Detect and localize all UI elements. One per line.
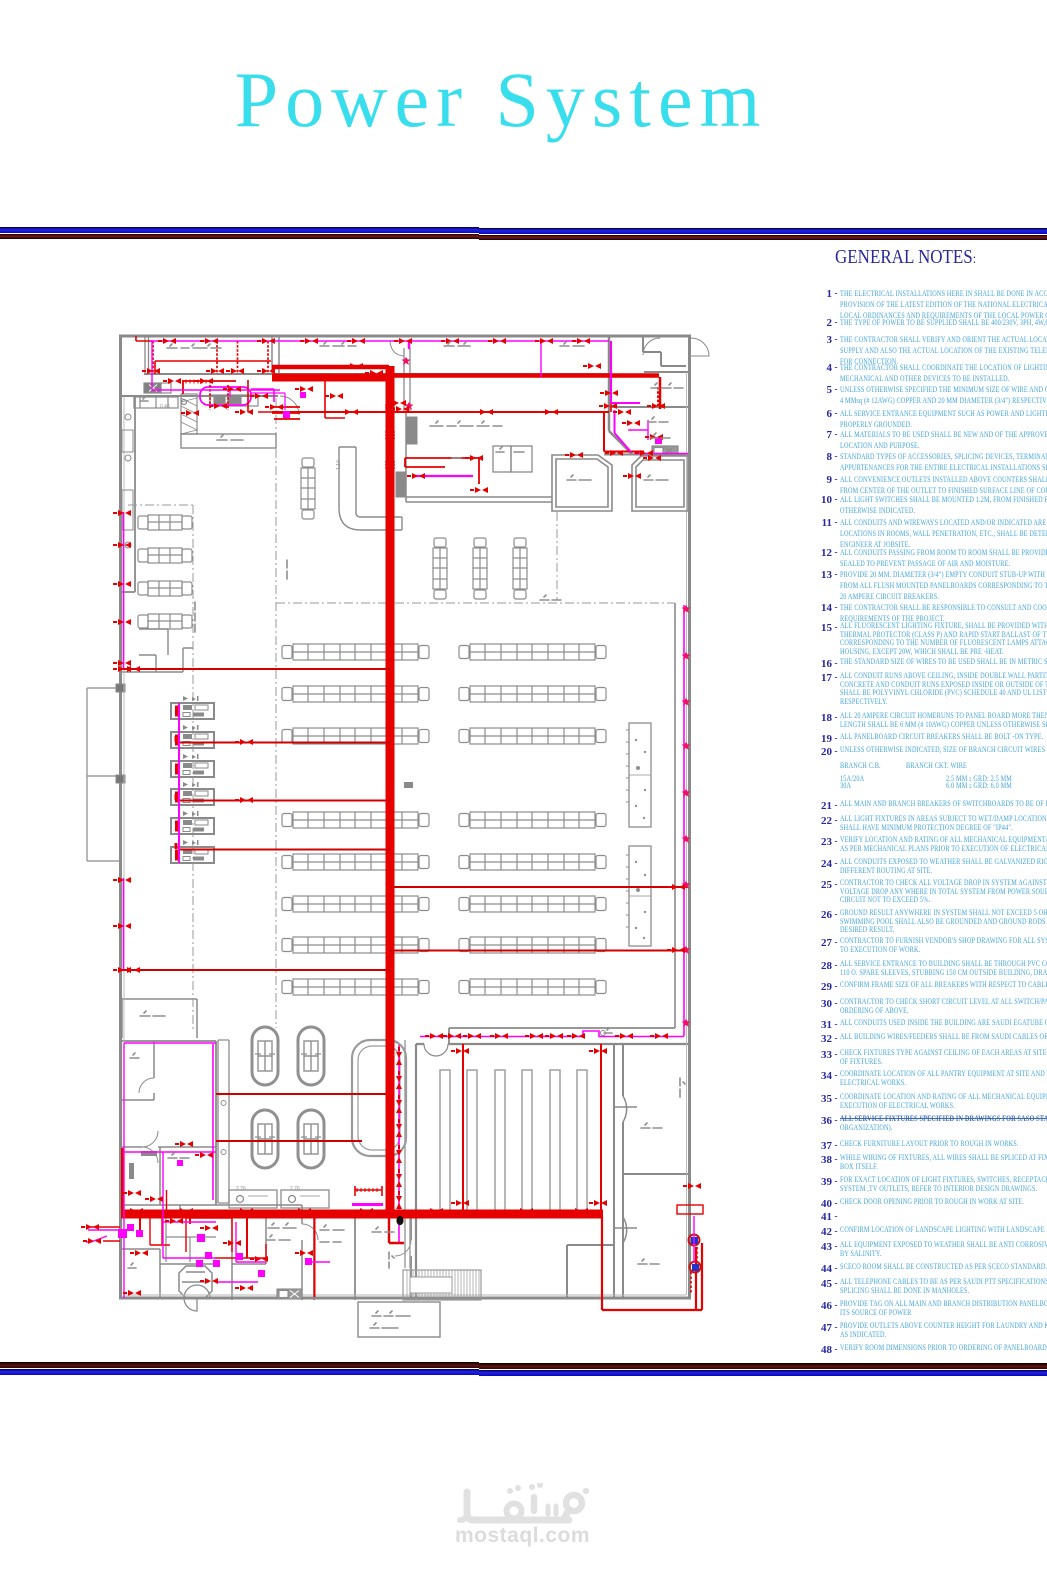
svg-text:2.76: 2.76 [236,1186,246,1192]
svg-text:mostaql.com: mostaql.com [455,1524,590,1547]
svg-text:1.10: 1.10 [336,460,342,470]
svg-text:2.76: 2.76 [290,1186,300,1192]
svg-text:0.45: 0.45 [160,404,170,410]
